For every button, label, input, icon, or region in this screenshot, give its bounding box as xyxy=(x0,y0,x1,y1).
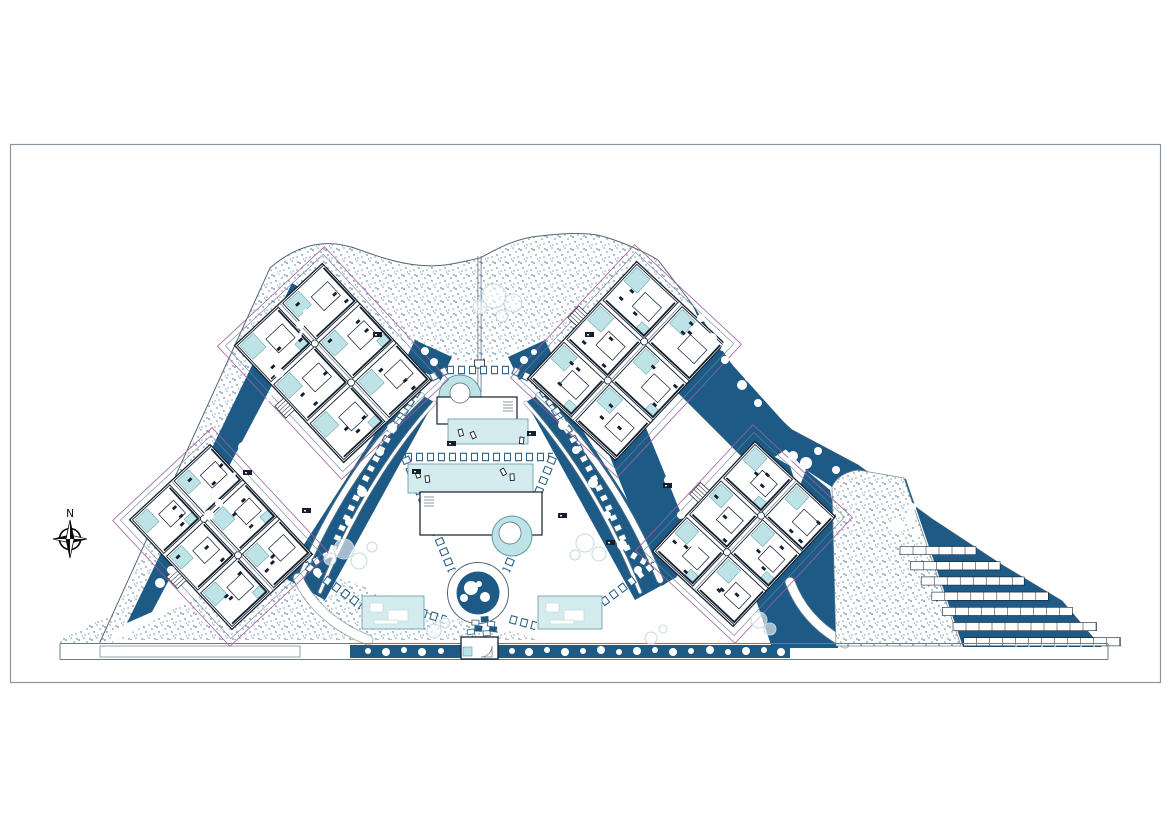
tree xyxy=(617,540,627,550)
label-chip xyxy=(447,441,456,446)
parking-terrace-row xyxy=(953,623,1097,631)
tree xyxy=(814,447,822,455)
tree xyxy=(430,358,438,366)
site-plan-svg: N xyxy=(0,0,1170,827)
label-chip xyxy=(527,431,536,436)
tree xyxy=(761,647,767,653)
tree xyxy=(525,648,533,656)
shrub xyxy=(645,632,657,644)
tree xyxy=(561,648,569,656)
tree xyxy=(777,648,785,656)
tree xyxy=(721,356,729,364)
tree xyxy=(832,466,840,474)
entrance-paver xyxy=(467,629,475,635)
label-chip xyxy=(243,470,252,475)
tree xyxy=(788,451,798,461)
lounge-chair xyxy=(519,437,524,444)
tree xyxy=(460,594,468,602)
tree xyxy=(800,457,812,469)
tree xyxy=(365,648,371,654)
tree xyxy=(677,511,685,519)
lounge-chair xyxy=(510,474,514,481)
tree xyxy=(754,399,762,407)
tree xyxy=(476,581,482,587)
tree xyxy=(155,578,165,588)
tree xyxy=(725,649,731,655)
tree xyxy=(603,511,611,519)
tree xyxy=(418,648,426,656)
tree xyxy=(509,346,517,354)
label-chip-glyph xyxy=(449,443,451,444)
court-table xyxy=(388,610,408,621)
tree xyxy=(543,367,551,375)
site-plan-root xyxy=(11,145,1161,683)
tree xyxy=(544,647,550,653)
parking-terrace-row xyxy=(911,562,1001,570)
tree xyxy=(520,356,528,364)
tree xyxy=(438,648,444,654)
tree xyxy=(248,429,256,437)
tree xyxy=(204,510,214,520)
tree xyxy=(634,566,642,574)
parking-terrace-row xyxy=(921,577,1024,585)
label-chip-glyph xyxy=(245,472,247,473)
tree xyxy=(891,519,905,533)
tree xyxy=(167,566,175,574)
tree xyxy=(588,478,598,488)
label-chip-glyph xyxy=(304,510,306,511)
label-chip-glyph xyxy=(375,334,377,335)
tree xyxy=(597,646,605,654)
upper-pool-island xyxy=(450,383,470,403)
tree xyxy=(688,648,694,654)
tree xyxy=(580,648,586,654)
tree xyxy=(313,568,321,576)
tree xyxy=(707,333,717,343)
entrance-paver xyxy=(481,616,488,622)
tree xyxy=(238,442,248,452)
central-hub-planter xyxy=(457,572,500,615)
label-chip xyxy=(412,469,421,474)
shrub xyxy=(592,547,606,561)
tree xyxy=(296,321,304,329)
tree xyxy=(357,487,367,497)
shrub xyxy=(496,310,508,322)
tree xyxy=(286,348,294,356)
lower-pool-island xyxy=(499,522,521,544)
tree xyxy=(376,448,384,456)
court-bench xyxy=(550,620,574,624)
tree xyxy=(706,646,714,654)
tree xyxy=(274,368,284,378)
tree xyxy=(906,514,916,524)
court-table xyxy=(564,610,584,621)
tree xyxy=(531,349,537,355)
tree xyxy=(387,423,397,433)
lounge-chair xyxy=(425,476,430,483)
court-bench xyxy=(374,620,398,624)
north-label: N xyxy=(66,508,74,520)
shrub xyxy=(504,294,522,312)
shrub xyxy=(473,300,487,314)
tree xyxy=(669,648,677,656)
entrance-paver xyxy=(487,621,495,627)
label-chip-glyph xyxy=(529,433,531,434)
label-chip xyxy=(663,483,672,488)
parking-terrace-row xyxy=(900,547,976,555)
court-table xyxy=(546,603,559,612)
tree xyxy=(401,647,407,653)
tree xyxy=(425,340,431,346)
entrance-paver xyxy=(472,620,479,625)
label-chip-glyph xyxy=(414,471,416,472)
shrub xyxy=(351,553,367,569)
parking-terrace-row xyxy=(932,592,1049,600)
court-table xyxy=(370,603,383,612)
drawing-canvas: N xyxy=(0,0,1170,827)
tree xyxy=(742,647,750,655)
tree xyxy=(215,499,223,507)
tree xyxy=(572,446,580,454)
tree xyxy=(303,309,309,315)
tree xyxy=(664,476,672,484)
tree xyxy=(551,380,557,386)
tree xyxy=(908,503,916,511)
label-chip-glyph xyxy=(608,542,610,543)
label-chip-glyph xyxy=(665,485,667,486)
tree xyxy=(421,347,429,355)
tree xyxy=(480,592,490,602)
shrub xyxy=(427,624,441,638)
shrub xyxy=(440,618,450,628)
label-chip xyxy=(373,332,382,337)
label-chip xyxy=(558,513,567,518)
label-chip xyxy=(585,332,594,337)
label-chip xyxy=(302,508,311,513)
label-chip xyxy=(606,540,615,545)
shrub xyxy=(324,553,336,565)
shrub xyxy=(334,539,354,559)
tree xyxy=(913,529,921,537)
shrub xyxy=(764,623,776,635)
tree xyxy=(652,647,658,653)
tree xyxy=(616,649,622,655)
shrub xyxy=(576,534,594,552)
tree xyxy=(464,581,478,595)
tree xyxy=(633,647,641,655)
tree xyxy=(697,314,705,322)
tree xyxy=(345,518,353,526)
tree xyxy=(382,648,390,656)
label-chip-glyph xyxy=(560,515,562,516)
entrance-paver xyxy=(475,626,482,631)
sidewalk-strip xyxy=(100,646,300,657)
shrub xyxy=(367,542,377,552)
shrub xyxy=(659,625,667,633)
entrance-pool-bit xyxy=(463,647,472,656)
tree xyxy=(558,420,568,430)
label-chip-glyph xyxy=(587,334,589,335)
tree xyxy=(737,380,747,390)
shrub xyxy=(570,550,580,560)
tree xyxy=(691,541,699,549)
tree xyxy=(509,648,515,654)
